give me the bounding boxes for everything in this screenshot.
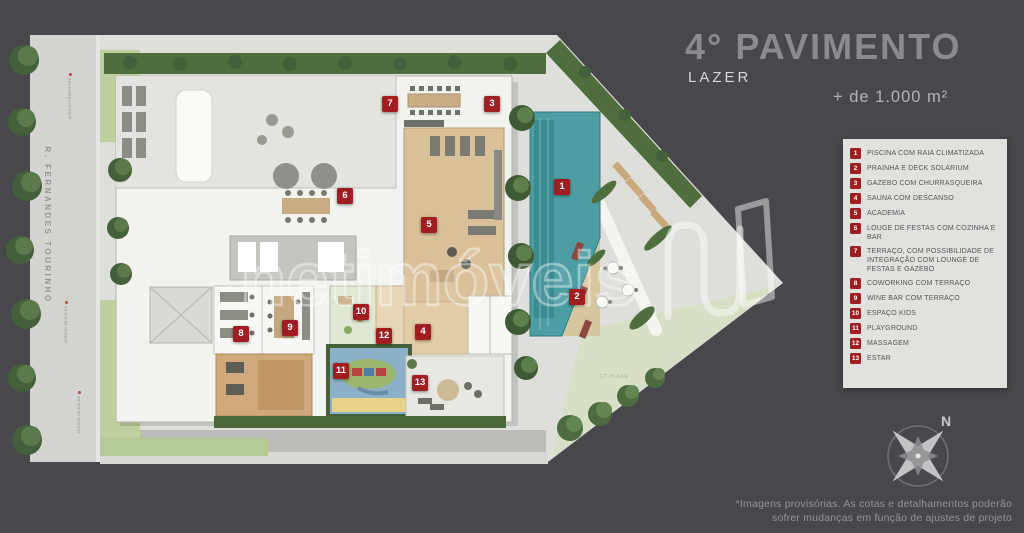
- legend-number-badge: 10: [850, 308, 861, 319]
- plan-marker-13: 13: [412, 375, 428, 391]
- legend-item: 4SAUNA COM DESCANSO: [850, 193, 1000, 204]
- street-label: R. FERNANDES TOURINHO: [40, 115, 52, 335]
- legend-number-badge: 13: [850, 353, 861, 364]
- legend-label: MASSAGEM: [867, 338, 909, 349]
- plan-marker-8: 8: [233, 326, 249, 342]
- legend-item: 5ACADEMIA: [850, 208, 1000, 219]
- legend-label: LOUGE DE FESTAS COM COZINHA E BAR: [867, 223, 1000, 242]
- plan-marker-3: 3: [484, 96, 500, 112]
- legend-number-badge: 2: [850, 163, 861, 174]
- legend-label: ACADEMIA: [867, 208, 905, 219]
- floor-plan-poster: netimóveis R. FERNANDES TOURINHO ACESSO …: [0, 0, 1024, 533]
- legend-item: 3GAZEBO COM CHURRASQUEIRA: [850, 178, 1000, 189]
- legend-item: 13ESTAR: [850, 353, 1000, 364]
- legend-label: GAZEBO COM CHURRASQUEIRA: [867, 178, 983, 189]
- plan-marker-10: 10: [353, 304, 369, 320]
- access-label: ACESSO PEDESTRES: [66, 66, 74, 126]
- legend-item: 10ESPAÇO KIDS: [850, 308, 1000, 319]
- room-sauna: [404, 302, 468, 354]
- legend-label: TERRAÇO, COM POSSIBILIDADE DE INTEGRAÇÃO…: [867, 246, 1000, 274]
- legend-label: COWORKING COM TERRAÇO: [867, 278, 970, 289]
- compass-rose-icon: N: [873, 404, 973, 499]
- legend-label: SAUNA COM DESCANSO: [867, 193, 954, 204]
- plan-marker-11: 11: [333, 363, 349, 379]
- legend-item: 9WINE BAR COM TERRAÇO: [850, 293, 1000, 304]
- legend-number-badge: 9: [850, 293, 861, 304]
- plan-marker-1: 1: [554, 179, 570, 195]
- legend-label: WINE BAR COM TERRAÇO: [867, 293, 960, 304]
- page-subtitle: LAZER: [688, 69, 751, 86]
- legend-label: PISCINA COM RAIA CLIMATIZADA: [867, 148, 984, 159]
- legend-item: 2PRAINHA E DECK SOLARIUM: [850, 163, 1000, 174]
- legend-number-badge: 5: [850, 208, 861, 219]
- legend-label: ESPAÇO KIDS: [867, 308, 916, 319]
- plan-marker-7: 7: [382, 96, 398, 112]
- watermark-logo-icon: [650, 185, 790, 335]
- access-label: ACESSO VEÍCULOS: [75, 382, 83, 442]
- legend-item: 8COWORKING COM TERRAÇO: [850, 278, 1000, 289]
- legend-label: PLAYGROUND: [867, 323, 918, 334]
- footnote-line2: sofrer mudanças em função de ajustes de …: [612, 511, 1012, 525]
- legend-item: 12MASSAGEM: [850, 338, 1000, 349]
- access-dot-icon: [78, 391, 81, 394]
- access-dot-icon: [65, 301, 68, 304]
- legend-item: 7TERRAÇO, COM POSSIBILIDADE DE INTEGRAÇÃ…: [850, 246, 1000, 274]
- legend-item: 6LOUGE DE FESTAS COM COZINHA E BAR: [850, 223, 1000, 242]
- plan-marker-5: 5: [421, 217, 437, 233]
- legend-number-badge: 8: [850, 278, 861, 289]
- legend-number-badge: 4: [850, 193, 861, 204]
- plan-marker-12: 12: [376, 328, 392, 344]
- footnote: *Imagens provisórias. As cotas e detalha…: [612, 497, 1012, 525]
- plan-marker-6: 6: [337, 188, 353, 204]
- legend-label: PRAINHA E DECK SOLARIUM: [867, 163, 969, 174]
- legend-number-badge: 1: [850, 148, 861, 159]
- neighbor-label: CT PLACE: [600, 374, 628, 380]
- legend-label: ESTAR: [867, 353, 891, 364]
- page-title: 4° PAVIMENTO: [685, 26, 961, 68]
- legend-item: 1PISCINA COM RAIA CLIMATIZADA: [850, 148, 1000, 159]
- legend-item: 11PLAYGROUND: [850, 323, 1000, 334]
- legend-number-badge: 6: [850, 223, 861, 234]
- legend-number-badge: 7: [850, 246, 861, 257]
- footnote-line1: *Imagens provisórias. As cotas e detalha…: [612, 497, 1012, 511]
- plan-marker-9: 9: [282, 320, 298, 336]
- legend-number-badge: 3: [850, 178, 861, 189]
- access-label: ACESSO VEÍCULOS: [62, 292, 70, 352]
- plan-marker-4: 4: [415, 324, 431, 340]
- plan-marker-2: 2: [569, 289, 585, 305]
- legend-number-badge: 11: [850, 323, 861, 334]
- area-label: + de 1.000 m²: [833, 88, 948, 107]
- compass-north-label: N: [941, 413, 951, 429]
- legend-number-badge: 12: [850, 338, 861, 349]
- access-dot-icon: [69, 73, 72, 76]
- legend-panel: 1PISCINA COM RAIA CLIMATIZADA2PRAINHA E …: [843, 139, 1007, 388]
